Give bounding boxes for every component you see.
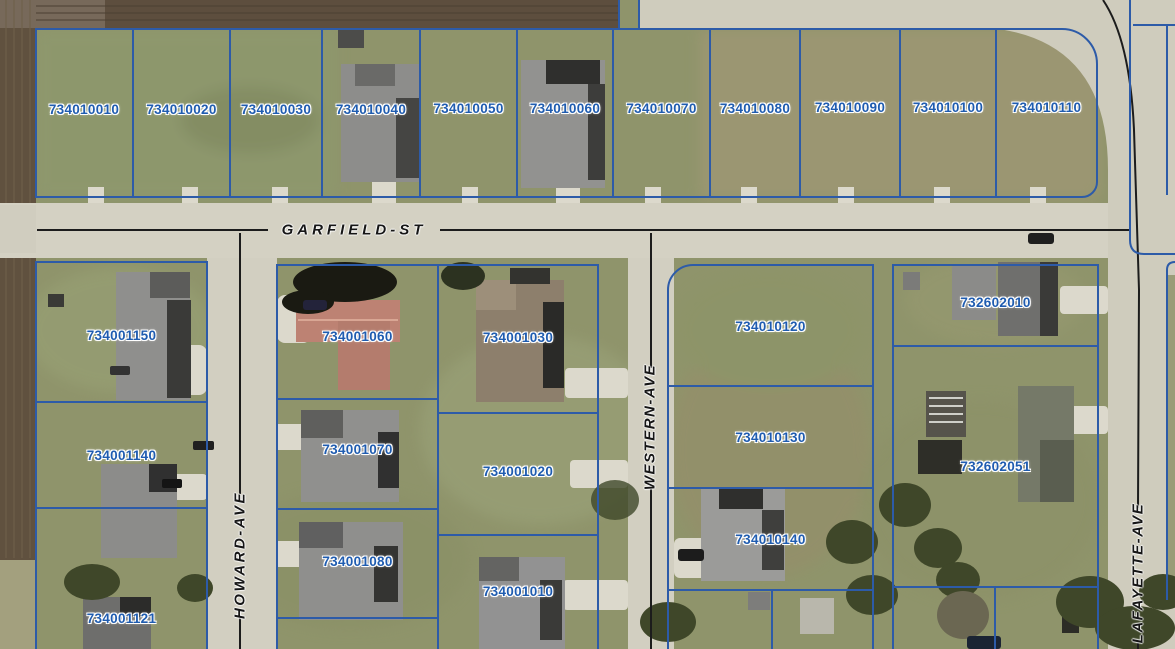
parcel-map-viewport[interactable]: 734010010 734010020 734010030 734010040 … bbox=[0, 0, 1175, 649]
street-label-howard-ave: HOWARD-AVE bbox=[232, 491, 249, 619]
street-label-layer: GARFIELD-ST HOWARD-AVE WESTERN-AVE LAFAY… bbox=[0, 0, 1175, 649]
street-label-garfield-st: GARFIELD-ST bbox=[282, 222, 427, 239]
street-label-lafayette-ave: LAFAYETTE-AVE bbox=[1130, 503, 1147, 644]
street-label-western-ave: WESTERN-AVE bbox=[642, 364, 659, 490]
